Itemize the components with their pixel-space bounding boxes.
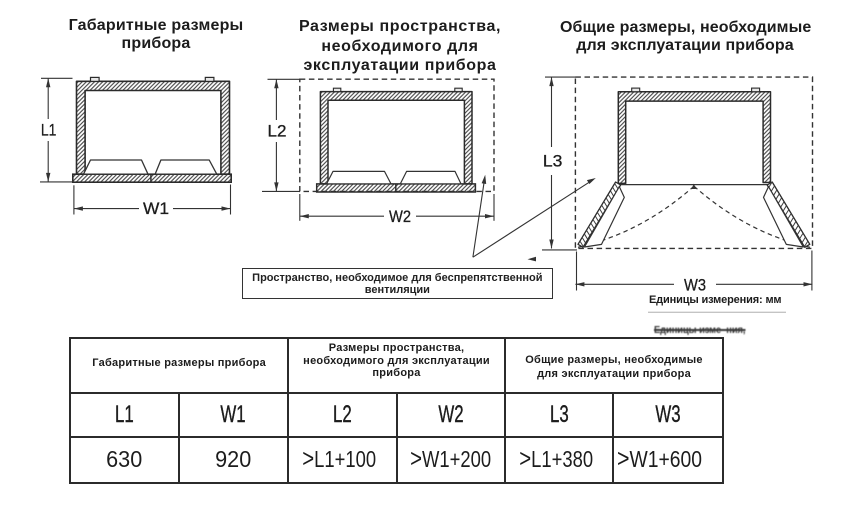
svg-text:W1: W1 (143, 199, 169, 218)
svg-text:W2: W2 (389, 207, 411, 226)
svg-text:W3: W3 (684, 275, 706, 294)
svg-text:L3: L3 (543, 152, 563, 171)
svg-text:L1: L1 (41, 121, 57, 140)
svg-text:L2: L2 (268, 122, 287, 141)
